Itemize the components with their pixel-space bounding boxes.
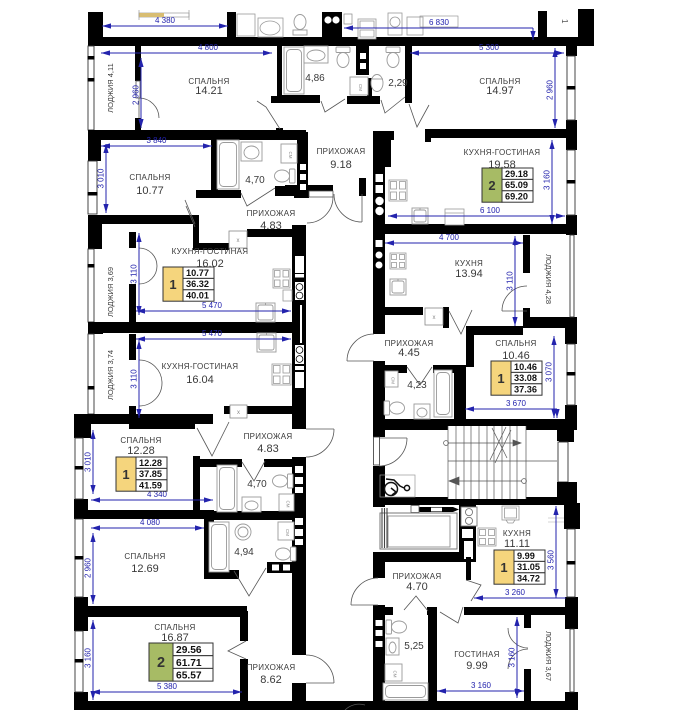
svg-text:3 010: 3 010	[97, 168, 106, 189]
svg-text:4,70: 4,70	[247, 479, 267, 490]
svg-text:2 960: 2 960	[84, 557, 93, 578]
svg-text:3 010: 3 010	[84, 451, 93, 472]
svg-text:4.70: 4.70	[406, 581, 427, 593]
svg-text:КУХНЯ: КУХНЯ	[503, 529, 531, 538]
svg-text:10.77: 10.77	[186, 268, 209, 278]
svg-text:37.85: 37.85	[139, 469, 162, 479]
svg-text:3 110: 3 110	[506, 271, 515, 291]
svg-text:10.46: 10.46	[502, 350, 530, 362]
svg-text:4 380: 4 380	[155, 16, 176, 25]
svg-text:61.71: 61.71	[176, 658, 202, 669]
svg-text:1: 1	[122, 467, 129, 482]
svg-text:4.45: 4.45	[398, 347, 419, 359]
svg-text:9.99: 9.99	[466, 660, 487, 672]
svg-text:4 700: 4 700	[439, 233, 460, 242]
svg-text:5,25: 5,25	[404, 641, 424, 652]
svg-text:34.72: 34.72	[517, 574, 540, 584]
svg-text:13.94: 13.94	[455, 268, 483, 280]
svg-text:СПАЛЬНЯ: СПАЛЬНЯ	[154, 623, 195, 632]
svg-text:3 070: 3 070	[545, 361, 554, 382]
svg-text:ЛОДЖИЯ 4,28: ЛОДЖИЯ 4,28	[544, 254, 553, 304]
svg-text:6 100: 6 100	[480, 206, 501, 215]
svg-text:41.59: 41.59	[139, 481, 162, 491]
svg-text:1: 1	[500, 560, 507, 575]
svg-text:3 670: 3 670	[506, 399, 527, 408]
svg-text:65.57: 65.57	[176, 671, 202, 682]
svg-text:5 470: 5 470	[202, 301, 223, 310]
svg-text:10.77: 10.77	[136, 185, 164, 197]
svg-text:40.01: 40.01	[186, 291, 209, 301]
svg-text:9.99: 9.99	[517, 551, 535, 561]
svg-text:12.28: 12.28	[127, 445, 155, 457]
svg-text:8.62: 8.62	[260, 674, 281, 686]
svg-text:4 800: 4 800	[198, 43, 219, 52]
svg-text:4,86: 4,86	[305, 73, 325, 84]
svg-text:4.83: 4.83	[260, 220, 281, 232]
svg-text:3 160: 3 160	[84, 647, 93, 668]
svg-text:29.18: 29.18	[505, 169, 528, 179]
svg-text:31.05: 31.05	[517, 562, 540, 572]
svg-text:1: 1	[560, 19, 569, 24]
svg-text:3 840: 3 840	[146, 136, 167, 145]
svg-text:КУХНЯ-ГОСТИНАЯ: КУХНЯ-ГОСТИНАЯ	[172, 247, 249, 256]
svg-text:29.56: 29.56	[176, 645, 202, 656]
svg-text:СПАЛЬНЯ: СПАЛЬНЯ	[495, 339, 536, 348]
svg-text:14.97: 14.97	[486, 85, 514, 97]
svg-text:3 110: 3 110	[130, 369, 139, 389]
svg-text:КУХНЯ-ГОСТИНАЯ: КУХНЯ-ГОСТИНАЯ	[464, 148, 541, 157]
svg-text:12.28: 12.28	[139, 458, 162, 468]
svg-text:2: 2	[157, 655, 165, 671]
svg-text:3 160: 3 160	[543, 169, 552, 190]
svg-text:ЛОДЖИЯ 4,11: ЛОДЖИЯ 4,11	[106, 63, 115, 113]
svg-text:5 300: 5 300	[479, 43, 500, 52]
svg-text:10.46: 10.46	[514, 362, 537, 372]
svg-text:СПАЛЬНЯ: СПАЛЬНЯ	[129, 173, 170, 182]
svg-text:2: 2	[488, 178, 495, 193]
svg-text:4 080: 4 080	[140, 518, 161, 527]
svg-text:x: x	[433, 315, 436, 321]
svg-text:4,94: 4,94	[234, 547, 254, 558]
svg-text:9.18: 9.18	[330, 159, 351, 171]
svg-text:65.09: 65.09	[505, 180, 528, 190]
svg-text:СМ: СМ	[391, 377, 396, 384]
svg-text:4,23: 4,23	[407, 380, 427, 391]
svg-text:ЛОДЖИЯ 3,67: ЛОДЖИЯ 3,67	[544, 631, 553, 681]
svg-text:69.20: 69.20	[505, 192, 528, 202]
svg-text:ПРИХОЖАЯ: ПРИХОЖАЯ	[393, 572, 442, 581]
svg-text:СПАЛЬНЯ: СПАЛЬНЯ	[120, 436, 161, 445]
svg-text:4.83: 4.83	[257, 443, 278, 455]
svg-text:33.08: 33.08	[514, 373, 537, 383]
svg-text:СМ: СМ	[393, 671, 398, 678]
svg-text:ПРИХОЖАЯ: ПРИХОЖАЯ	[317, 147, 366, 156]
svg-text:12.69: 12.69	[131, 563, 159, 575]
svg-text:2,29: 2,29	[388, 78, 408, 89]
svg-text:ЛОДЖИЯ 3,74: ЛОДЖИЯ 3,74	[106, 350, 115, 400]
svg-text:ПРИХОЖАЯ: ПРИХОЖАЯ	[247, 209, 296, 218]
svg-text:x: x	[237, 238, 240, 244]
svg-text:3 260: 3 260	[505, 588, 526, 597]
svg-text:3 160: 3 160	[471, 681, 492, 690]
svg-text:СМ: СМ	[286, 501, 291, 508]
svg-text:КУХНЯ: КУХНЯ	[455, 259, 483, 268]
svg-text:ЛОДЖИЯ 3,69: ЛОДЖИЯ 3,69	[106, 267, 115, 317]
svg-text:4,70: 4,70	[245, 175, 265, 186]
svg-text:16.87: 16.87	[161, 632, 189, 644]
svg-text:ПРИХОЖАЯ: ПРИХОЖАЯ	[244, 432, 293, 441]
svg-text:1: 1	[169, 277, 176, 292]
svg-text:ПРИХОЖАЯ: ПРИХОЖАЯ	[247, 663, 296, 672]
svg-text:СМ: СМ	[285, 529, 290, 536]
svg-text:2 960: 2 960	[132, 84, 141, 105]
svg-text:16.04: 16.04	[186, 374, 214, 386]
svg-text:3 110: 3 110	[130, 264, 139, 284]
svg-text:11.11: 11.11	[504, 538, 530, 550]
svg-text:СМ: СМ	[358, 84, 363, 91]
svg-text:37.36: 37.36	[514, 385, 537, 395]
svg-text:ГОСТИНАЯ: ГОСТИНАЯ	[454, 650, 500, 659]
svg-text:5 380: 5 380	[157, 682, 178, 691]
svg-text:2 960: 2 960	[546, 79, 555, 100]
svg-text:1: 1	[497, 371, 504, 386]
svg-text:5 470: 5 470	[202, 329, 223, 338]
svg-text:СМ: СМ	[288, 152, 293, 159]
svg-text:КУХНЯ-ГОСТИНАЯ: КУХНЯ-ГОСТИНАЯ	[162, 362, 239, 371]
svg-text:6 830: 6 830	[429, 18, 450, 27]
svg-text:3 560: 3 560	[547, 549, 556, 570]
svg-text:СПАЛЬНЯ: СПАЛЬНЯ	[124, 552, 165, 561]
svg-text:3 160: 3 160	[508, 647, 517, 668]
svg-text:36.32: 36.32	[186, 279, 209, 289]
svg-text:14.21: 14.21	[195, 85, 223, 97]
svg-text:x: x	[237, 410, 240, 416]
